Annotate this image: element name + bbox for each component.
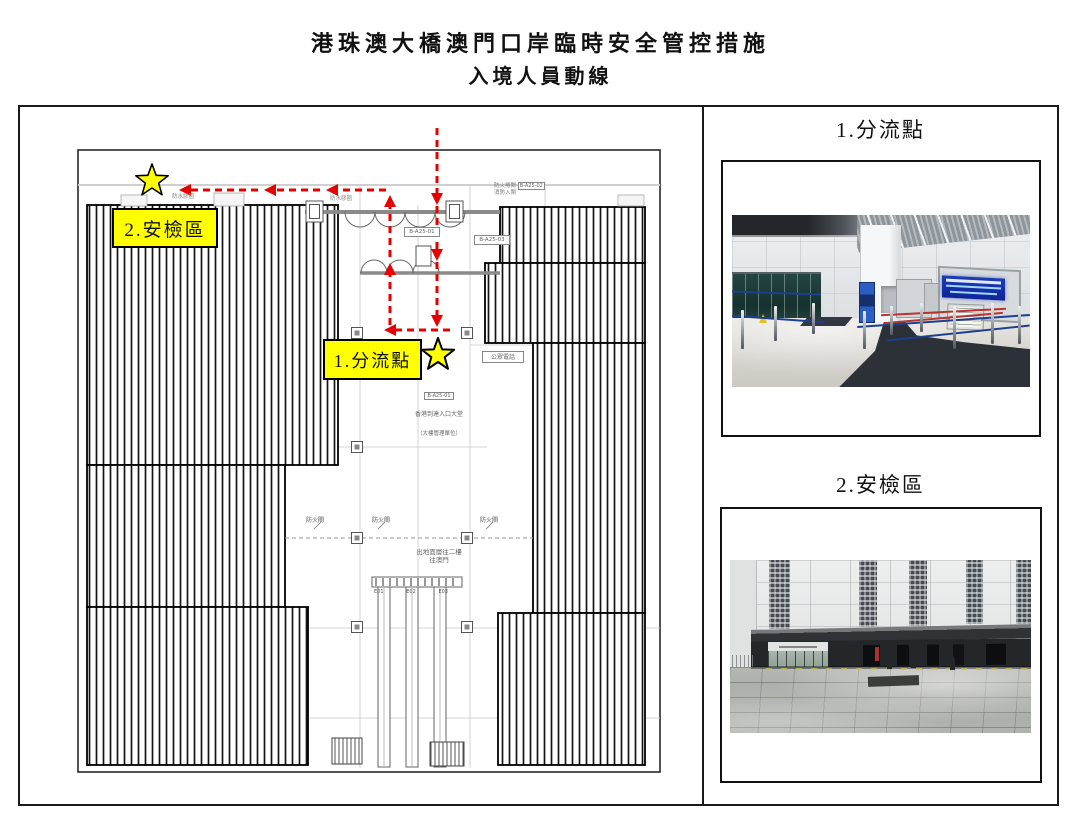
panel-divider (702, 105, 704, 806)
section2-heading: 2.安檢區 (702, 469, 1059, 499)
note-exit: 出地面層往二樓 往澳門 (397, 549, 481, 565)
doorway (986, 644, 1006, 665)
pedestrian (911, 657, 916, 668)
stanchion-post (741, 310, 744, 350)
facade-lattice (769, 560, 790, 629)
facade-lattice (909, 560, 927, 626)
ground-mat (868, 675, 919, 686)
facade-lattice (966, 560, 983, 624)
note-public-phone: 公眾電話 (482, 351, 524, 363)
doorway (897, 645, 910, 666)
escalator-label-e03: E03 (438, 589, 448, 595)
note-arrival-hall-name: 香港到達入口大堂 (415, 411, 463, 418)
note-arrival-hall-code: B-A25-01 (424, 392, 453, 400)
photo-security-area (730, 560, 1031, 733)
note-seal-2: 防水膠圈 (330, 196, 352, 203)
page-title-line1: 港珠澳大橋澳門口岸臨時安全管控措施 (0, 26, 1081, 58)
note-seal-1: 防水膠圈 (172, 194, 194, 201)
note-top-shutter-code: B-A25-02 (518, 182, 545, 190)
escalator-labels: E01 E02 E03 (374, 589, 448, 595)
marker-security-area: 2.安檢區 (112, 208, 218, 248)
plaza-entrance (768, 642, 828, 669)
facade-lattice (1016, 560, 1031, 624)
stanchion-post (812, 303, 815, 334)
note-arrival-hall-sub: （大樓管理單位） (417, 431, 461, 437)
escalator-label-e01: E01 (374, 589, 384, 595)
pedestrian (887, 657, 892, 669)
stanchion-post (1018, 306, 1021, 344)
marker-security-area-label: 2.安檢區 (124, 215, 205, 242)
stanchion-post (863, 311, 866, 349)
note-fire-shutter-1: 防火閘 (306, 517, 324, 524)
note-exit-line1: 出地面層往二樓 (416, 548, 462, 556)
photo1-frame (721, 160, 1041, 437)
pedestrian (950, 656, 955, 670)
photo-split-point (732, 215, 1030, 387)
doorway-red-sign (875, 647, 878, 660)
stanchion-post (920, 303, 923, 332)
note-arrival-hall: B-A25-01 香港到達入口大堂 （大樓管理單位） (387, 382, 491, 440)
note-code-a: B-A25-01 (404, 227, 440, 237)
note-code-b: B-A25-03 (474, 235, 510, 245)
note-top-entry: 消防入閘 (494, 190, 516, 196)
stanchion-post (991, 303, 994, 344)
section1-heading: 1.分流點 (702, 114, 1059, 144)
doorway (927, 644, 938, 665)
escalator-label-e02: E02 (406, 589, 416, 595)
facade-lattice (859, 560, 877, 627)
tactile-strip (766, 668, 1031, 670)
photo2-frame (720, 507, 1042, 783)
stanchion-post (953, 306, 956, 349)
hall-led-sign (942, 275, 1005, 301)
document-page: 港珠澳大橋澳門口岸臨時安全管控措施 入境人員動線 (0, 0, 1081, 824)
stanchion-post (774, 306, 777, 340)
note-fire-shutter-2: 防火閘 (372, 517, 390, 524)
note-fire-shutter-3: 防火閘 (480, 517, 498, 524)
note-top-shutter: 防火捲閘 B-A25-02 消防入閘 (494, 182, 578, 197)
hall-kiosk (859, 282, 875, 323)
note-top-shutter-text: 防火捲閘 (494, 183, 516, 189)
note-exit-line2: 往澳門 (429, 556, 449, 564)
page-title-line2: 入境人員動線 (0, 60, 1081, 89)
marker-split-point: 1.分流點 (323, 339, 422, 380)
stanchion-post (890, 306, 893, 335)
hall-ceiling-dark (732, 215, 869, 237)
marker-split-point-label: 1.分流點 (334, 347, 412, 373)
